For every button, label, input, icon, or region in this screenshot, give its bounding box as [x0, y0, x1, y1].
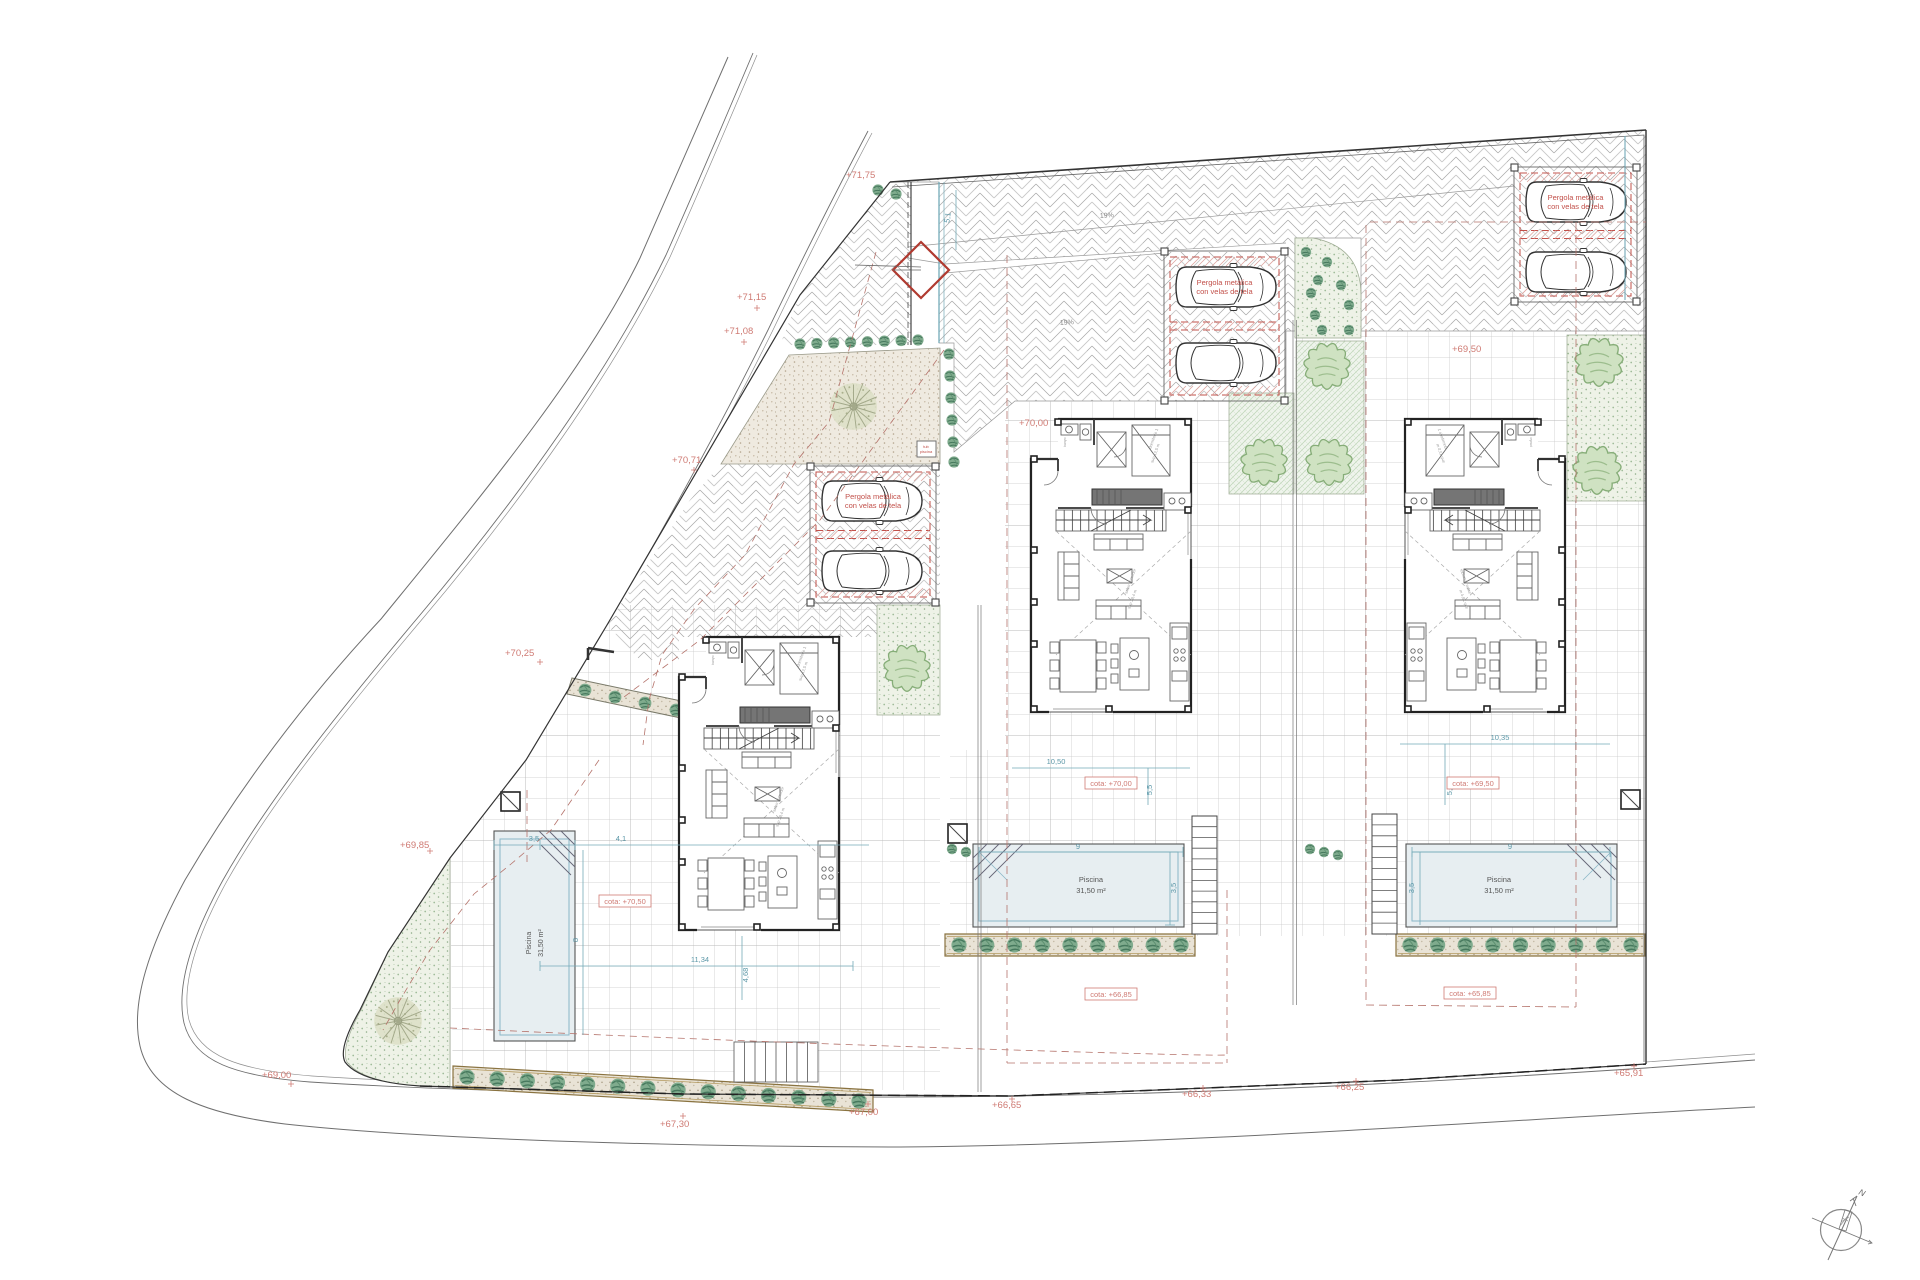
svg-text:cota: +70,00: cota: +70,00	[1090, 779, 1132, 788]
svg-text:+70,00: +70,00	[1019, 418, 1048, 429]
svg-text:N: N	[1857, 1187, 1868, 1199]
svg-text:+65,91: +65,91	[1614, 1068, 1643, 1079]
svg-text:3,5: 3,5	[529, 834, 539, 843]
svg-text:3,5: 3,5	[1407, 883, 1416, 893]
svg-text:cota: +65,85: cota: +65,85	[1449, 989, 1491, 998]
svg-text:9: 9	[1508, 842, 1512, 851]
svg-text:+66,25: +66,25	[1335, 1082, 1364, 1093]
svg-text:Pergola metálica: Pergola metálica	[1548, 193, 1605, 202]
svg-text:19%: 19%	[1060, 319, 1074, 327]
svg-text:con velas de tela: con velas de tela	[1196, 287, 1253, 296]
svg-text:3,5: 3,5	[1169, 883, 1178, 893]
svg-text:Piscina: Piscina	[1487, 875, 1512, 884]
svg-text:+69,85: +69,85	[400, 840, 429, 851]
svg-text:+70,25: +70,25	[505, 648, 534, 659]
svg-text:4,1: 4,1	[616, 834, 626, 843]
svg-text:Piscina: Piscina	[1079, 875, 1104, 884]
svg-text:11,34: 11,34	[691, 955, 709, 964]
svg-text:+71,15: +71,15	[737, 292, 766, 303]
svg-text:10,35: 10,35	[1491, 733, 1510, 742]
svg-text:Pergola metálica: Pergola metálica	[1197, 278, 1254, 287]
svg-text:31,50 m²: 31,50 m²	[1484, 886, 1514, 895]
svg-text:8: 8	[571, 938, 580, 942]
svg-text:cota: +66,85: cota: +66,85	[1090, 990, 1132, 999]
svg-text:con velas de tela: con velas de tela	[1547, 202, 1604, 211]
svg-text:31,50 m²: 31,50 m²	[1076, 886, 1106, 895]
svg-text:10,50: 10,50	[1047, 757, 1066, 766]
svg-text:piscina: piscina	[920, 449, 933, 454]
svg-text:+69,50: +69,50	[1452, 344, 1481, 355]
svg-text:9: 9	[1076, 842, 1080, 851]
svg-text:cota: +69,50: cota: +69,50	[1452, 779, 1494, 788]
svg-text:4,68: 4,68	[741, 968, 750, 983]
svg-text:Piscina: Piscina	[526, 932, 533, 955]
svg-text:cota: +70,50: cota: +70,50	[604, 897, 646, 906]
svg-text:con velas de tela: con velas de tela	[845, 501, 902, 510]
svg-text:+66,33: +66,33	[1182, 1089, 1211, 1100]
svg-text:19%: 19%	[1100, 212, 1114, 220]
svg-text:Pergola metálica: Pergola metálica	[845, 492, 902, 501]
svg-text:+71,75: +71,75	[846, 170, 875, 181]
svg-text:+67,00: +67,00	[849, 1107, 878, 1118]
svg-text:+70,71: +70,71	[672, 455, 701, 466]
svg-text:+71,08: +71,08	[724, 326, 753, 337]
svg-text:+69,00: +69,00	[262, 1070, 291, 1081]
svg-text:5,5: 5,5	[1145, 785, 1154, 795]
svg-text:+67,30: +67,30	[660, 1119, 689, 1130]
svg-text:5,1: 5,1	[942, 212, 952, 224]
svg-text:31,50 m²: 31,50 m²	[538, 929, 545, 957]
svg-text:+66,65: +66,65	[992, 1100, 1021, 1111]
